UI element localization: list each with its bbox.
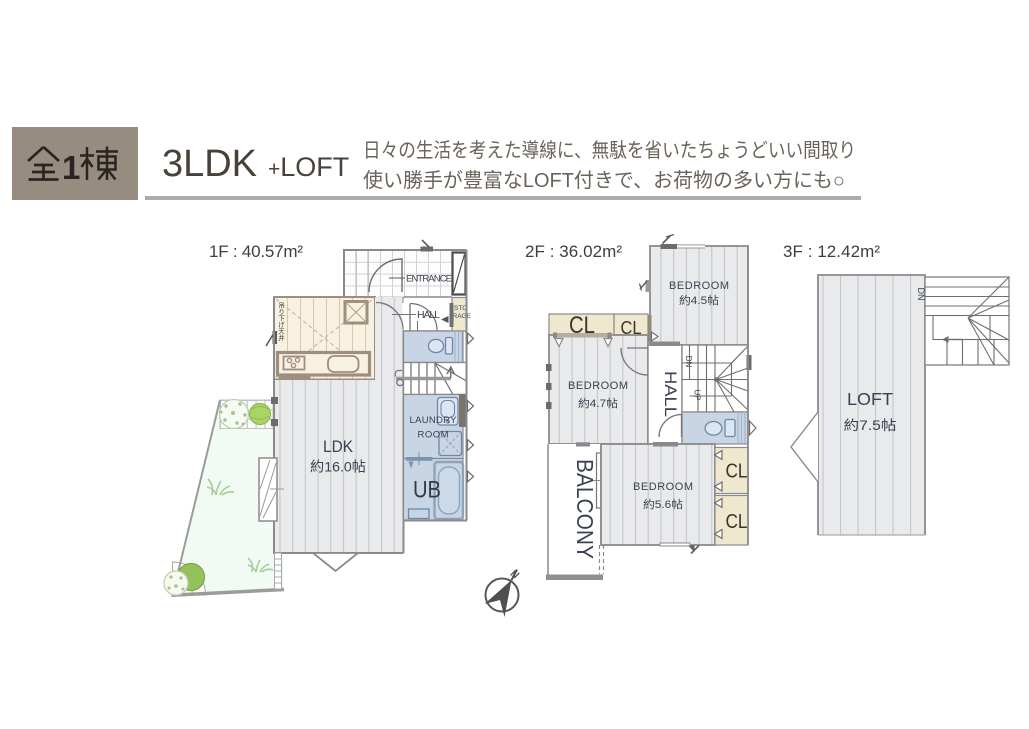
svg-text:約16.0帖: 約16.0帖 — [310, 459, 366, 475]
svg-text:HALL: HALL — [417, 309, 440, 321]
svg-text:使い勝手が豊富なLOFT付きで、お荷物の多い方にも○: 使い勝手が豊富なLOFT付きで、お荷物の多い方にも○ — [363, 169, 845, 192]
svg-text:BEDROOM: BEDROOM — [669, 280, 729, 292]
svg-text:BEDROOM: BEDROOM — [568, 380, 628, 392]
svg-text:LAUNDRY: LAUNDRY — [410, 415, 458, 426]
svg-text:ENTRANCE: ENTRANCE — [406, 274, 452, 285]
svg-text:1F : 40.57m²: 1F : 40.57m² — [209, 242, 303, 261]
svg-text:約4.7帖: 約4.7帖 — [578, 396, 618, 410]
svg-text:2F : 36.02m²: 2F : 36.02m² — [525, 242, 622, 261]
svg-text:CL: CL — [726, 511, 748, 533]
svg-text:1: 1 — [62, 149, 80, 186]
svg-text:約4.5帖: 約4.5帖 — [679, 293, 719, 307]
svg-text:HALL: HALL — [661, 371, 680, 417]
svg-text:DN: DN — [916, 288, 926, 301]
svg-text:STO: STO — [454, 305, 467, 312]
svg-text:BALCONY: BALCONY — [572, 459, 598, 559]
svg-text:約5.6帖: 約5.6帖 — [643, 497, 683, 511]
svg-text:日々の生活を考えた導線に、無駄を省いたちょうどいい間取り: 日々の生活を考えた導線に、無駄を省いたちょうどいい間取り — [363, 139, 856, 162]
svg-text:ROOM: ROOM — [418, 430, 449, 441]
svg-text:RAGE: RAGE — [453, 313, 472, 320]
svg-text:3F : 12.42m²: 3F : 12.42m² — [783, 242, 880, 261]
svg-text:UP: UP — [693, 389, 702, 400]
svg-text:+LOFT: +LOFT — [268, 152, 349, 182]
svg-text:約7.5帖: 約7.5帖 — [844, 418, 897, 433]
svg-text:LOFT: LOFT — [847, 389, 893, 409]
svg-text:CL: CL — [726, 461, 748, 483]
svg-text:BEDROOM: BEDROOM — [633, 481, 693, 493]
svg-text:LDK: LDK — [323, 437, 354, 456]
svg-text:DN: DN — [684, 356, 693, 368]
svg-text:3LDK: 3LDK — [162, 143, 257, 185]
svg-text:UB: UB — [413, 477, 441, 504]
